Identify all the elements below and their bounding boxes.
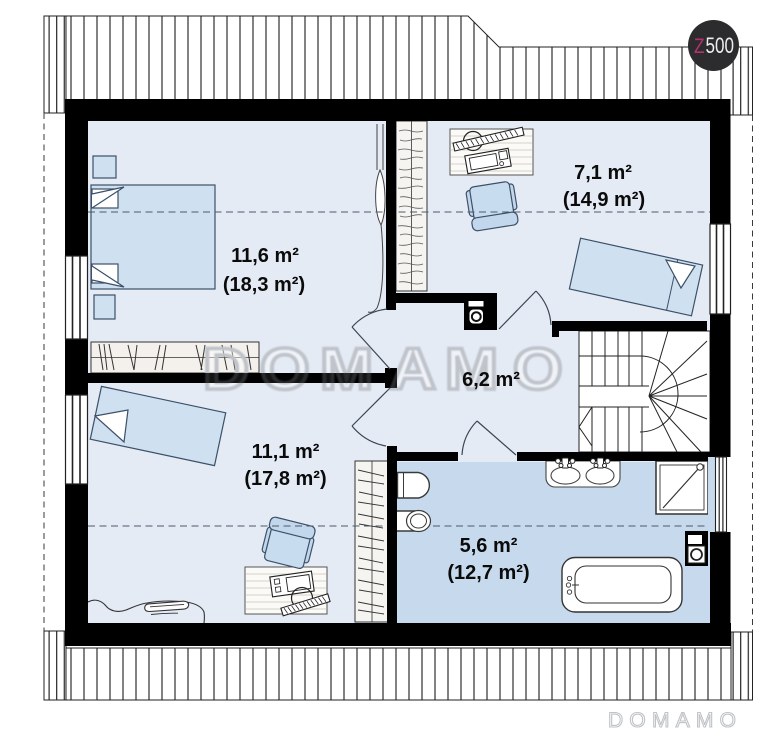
svg-text:500: 500	[706, 33, 735, 58]
svg-text:11,6 m²: 11,6 m²	[231, 245, 299, 267]
svg-text:(14,9 m²): (14,9 m²)	[563, 189, 645, 211]
svg-text:7,1 m²: 7,1 m²	[574, 162, 632, 184]
svg-text:(12,7 m²): (12,7 m²)	[447, 562, 529, 584]
svg-text:5,6 m²: 5,6 m²	[460, 535, 518, 557]
svg-text:11,1 m²: 11,1 m²	[252, 441, 320, 463]
svg-text:(18,3 m²): (18,3 m²)	[223, 274, 305, 296]
svg-text:6,2 m²: 6,2 m²	[462, 369, 520, 391]
svg-text:(17,8 m²): (17,8 m²)	[244, 468, 326, 490]
svg-text:Z: Z	[694, 35, 705, 58]
